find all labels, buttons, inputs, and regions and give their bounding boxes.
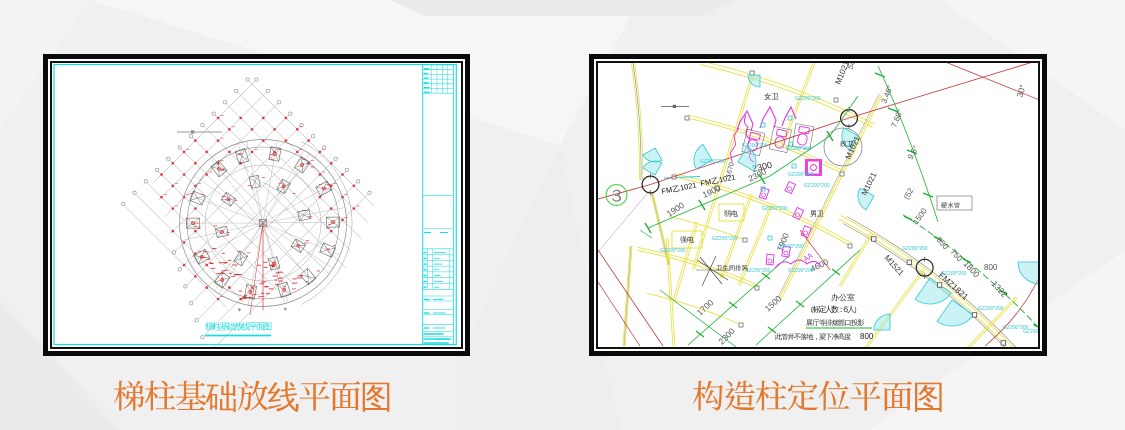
svg-text:M1021: M1021 (834, 63, 852, 86)
svg-text:GZ200*200: GZ200*200 (788, 268, 814, 274)
svg-text:9.6°: 9.6° (906, 144, 921, 161)
svg-text:1021: 1021 (679, 180, 697, 192)
svg-text:GZ200*200: GZ200*200 (742, 143, 768, 149)
svg-text:GZ200*200: GZ200*200 (978, 306, 1004, 312)
svg-text:GZ200*200: GZ200*200 (745, 268, 771, 274)
svg-text:GZ200*200: GZ200*200 (788, 172, 814, 178)
svg-text:GZ200*200: GZ200*200 (1023, 329, 1038, 335)
svg-text:1700: 1700 (695, 297, 716, 317)
svg-text:1322: 1322 (990, 279, 1010, 300)
svg-text:GZ200*200: GZ200*200 (778, 244, 804, 250)
svg-text:3.46°: 3.46° (880, 84, 895, 105)
svg-text:750: 750 (949, 247, 965, 263)
svg-text:M1021: M1021 (860, 170, 879, 196)
svg-text:2300: 2300 (716, 326, 737, 347)
svg-text:GZ200*200: GZ200*200 (762, 206, 788, 212)
svg-text:GZ200*200: GZ200*200 (786, 146, 812, 152)
svg-text:1021: 1021 (718, 172, 736, 184)
svg-text:GZ200*200: GZ200*200 (804, 183, 830, 189)
svg-text:(52: (52 (902, 186, 916, 201)
svg-text:800: 800 (860, 332, 874, 341)
svg-text:1500: 1500 (911, 206, 929, 226)
svg-text:GZ200*200: GZ200*200 (700, 159, 726, 165)
svg-text:7.68°: 7.68° (890, 108, 905, 129)
svg-text:GZ200*200: GZ200*200 (902, 246, 928, 252)
svg-text:GZ200*200: GZ200*200 (660, 248, 686, 254)
svg-text:GZ200*200: GZ200*200 (712, 236, 738, 242)
svg-text:800: 800 (984, 263, 998, 272)
svg-text:1900: 1900 (665, 200, 687, 219)
svg-text:30°: 30° (1014, 83, 1027, 98)
svg-text:FM: FM (661, 185, 673, 196)
svg-text:GZ200*200: GZ200*200 (795, 96, 821, 102)
svg-text:GZ200*200: GZ200*200 (941, 271, 967, 277)
